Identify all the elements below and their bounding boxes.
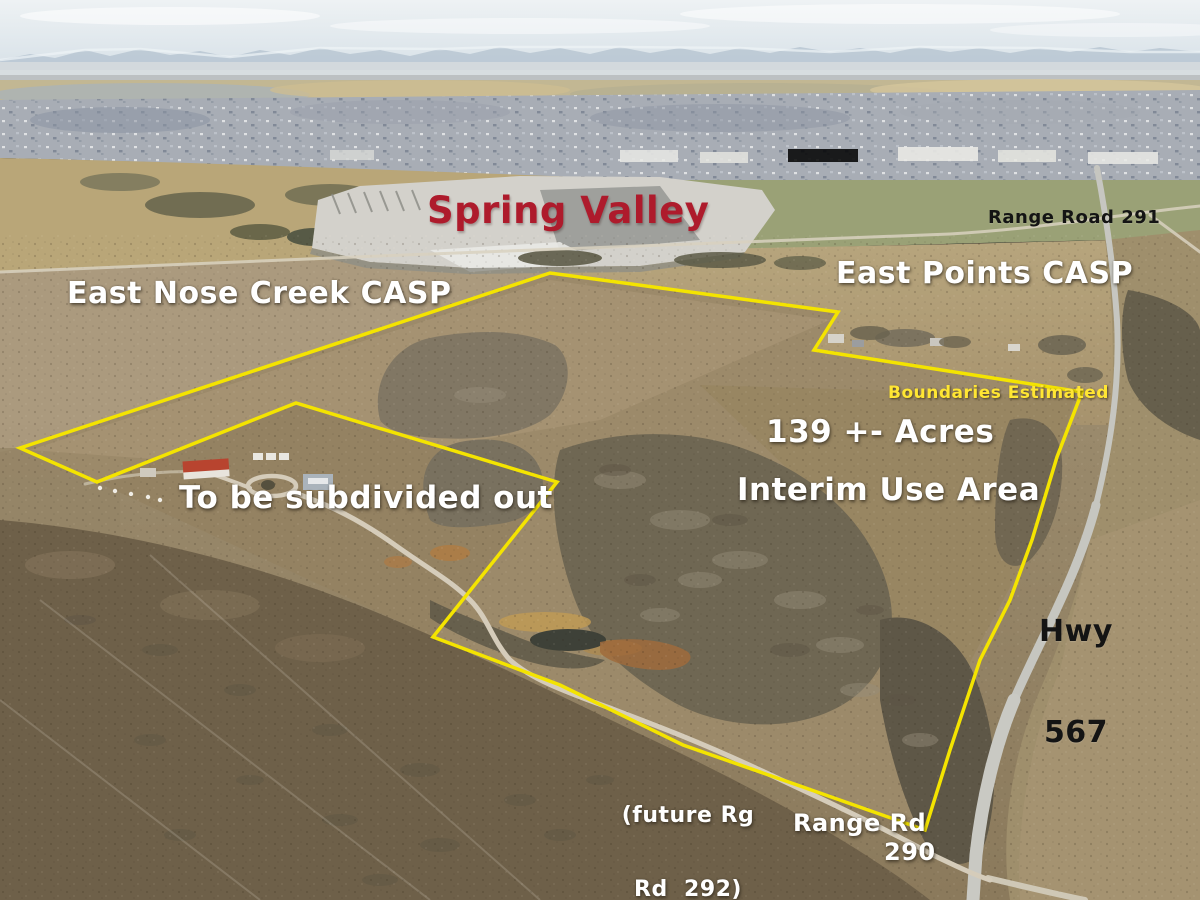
- label-spring-valley: Spring Valley: [427, 190, 709, 231]
- label-to-be-subdivided: To be subdivided out: [179, 481, 553, 516]
- label-interim-use-area: Interim Use Area: [737, 473, 1040, 508]
- label-range-road-291: Range Road 291: [988, 208, 1160, 228]
- label-east-points-casp: East Points CASP: [836, 257, 1133, 291]
- label-future-range-road-292: (future Rg Rd 292): [620, 755, 756, 900]
- label-boundaries-estimated: Boundaries Estimated: [888, 384, 1109, 403]
- label-range-rd-290: Range Rd: [793, 810, 926, 837]
- aerial-photo-canvas: [0, 0, 1200, 900]
- label-future-line2: Rd 292): [620, 878, 756, 900]
- label-acreage: 139 +- Acres: [766, 415, 994, 450]
- label-hwy-line2: 567: [1036, 716, 1116, 750]
- label-east-nose-creek-casp: East Nose Creek CASP: [67, 277, 451, 311]
- ground-texture: [0, 235, 1200, 900]
- label-range-rd-290-number: 290: [884, 839, 936, 866]
- label-future-line1: (future Rg: [620, 804, 756, 829]
- sky-band: [0, 0, 1200, 90]
- label-hwy-line1: Hwy: [1036, 615, 1116, 649]
- shed: [140, 468, 156, 477]
- trailer-row: [253, 453, 289, 460]
- label-hwy-567: Hwy 567: [1036, 548, 1116, 783]
- annotated-aerial-photo: Spring Valley Range Road 291 East Nose C…: [0, 0, 1200, 900]
